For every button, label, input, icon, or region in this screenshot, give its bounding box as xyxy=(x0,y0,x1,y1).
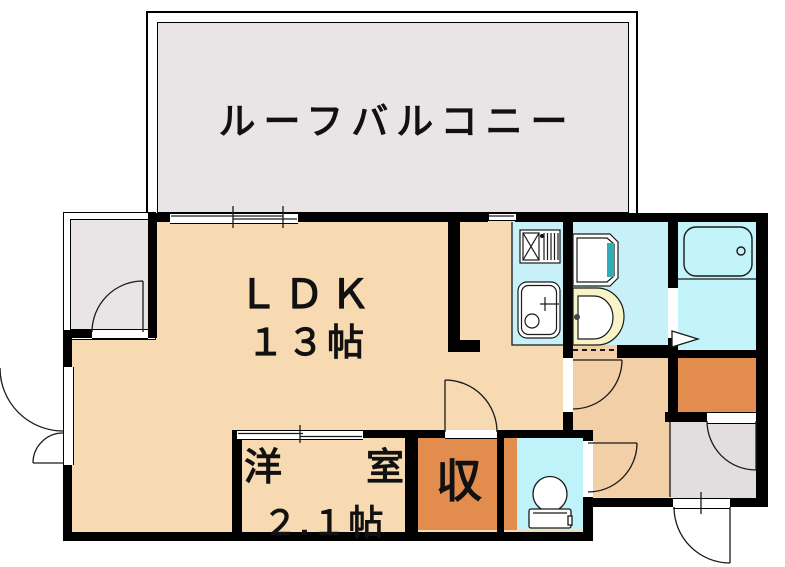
roof-balcony-label: ルーフバルコニー xyxy=(210,91,575,145)
hallway-lower xyxy=(593,438,670,497)
room-entrance xyxy=(670,422,756,497)
wall xyxy=(448,340,480,352)
western-room-name-first: 洋 xyxy=(244,448,282,490)
wall xyxy=(515,213,768,222)
room-washroom xyxy=(573,222,668,345)
wall xyxy=(63,465,72,541)
room-service-alcove xyxy=(70,219,150,330)
wall xyxy=(148,213,157,338)
room-toilet xyxy=(517,438,583,530)
western-room-label: 洋 室 ２.１帖 xyxy=(244,448,404,546)
wall xyxy=(298,213,488,222)
ldk-size: １３帖 xyxy=(222,320,392,366)
french-door-arc-bottom xyxy=(33,433,63,463)
storage-door-opening xyxy=(445,430,497,439)
room-roof-balcony: ルーフバルコニー xyxy=(157,22,629,213)
wall xyxy=(617,345,668,358)
wall xyxy=(756,213,768,507)
wall xyxy=(665,412,707,422)
wall xyxy=(668,350,756,358)
wall xyxy=(583,497,593,541)
wall xyxy=(63,330,92,338)
outside-cutout xyxy=(593,507,785,567)
room-kitchen xyxy=(512,222,563,345)
window-ldk-top xyxy=(170,213,298,224)
western-room-name-second: 室 xyxy=(366,448,404,490)
ldk-name: ＬＤＫ xyxy=(222,270,392,320)
storage-label: 収 xyxy=(420,456,498,507)
floor-plan: ルーフバルコニー xyxy=(0,0,785,567)
wall xyxy=(497,438,504,532)
wall xyxy=(563,222,573,358)
toilet-pipe-space xyxy=(504,438,517,530)
window-western-room xyxy=(237,430,363,440)
french-door-opening xyxy=(63,367,74,465)
wall xyxy=(668,222,678,288)
ldk-label: ＬＤＫ １３帖 xyxy=(222,270,392,366)
wall xyxy=(405,438,418,532)
washer-space xyxy=(678,358,756,412)
french-door-arc-top xyxy=(0,368,63,431)
bath-door-opening xyxy=(668,288,678,338)
wall xyxy=(448,222,460,352)
wall xyxy=(363,430,445,438)
western-room-size: ２.１帖 xyxy=(244,495,404,546)
wall xyxy=(583,430,593,441)
wall xyxy=(63,333,72,367)
window-kitchen-top xyxy=(488,213,517,221)
closet-door-opening xyxy=(707,412,756,424)
room-bathroom xyxy=(678,222,756,352)
toilet-door-opening xyxy=(583,441,593,497)
wall xyxy=(157,213,170,222)
hallway-upper xyxy=(573,345,670,438)
entrance-door-opening xyxy=(673,498,730,509)
hall-door-opening xyxy=(563,358,573,412)
wall xyxy=(497,430,593,438)
service-door-opening xyxy=(92,330,148,339)
western-room-name: 洋 室 xyxy=(244,448,404,490)
wall xyxy=(232,430,242,541)
